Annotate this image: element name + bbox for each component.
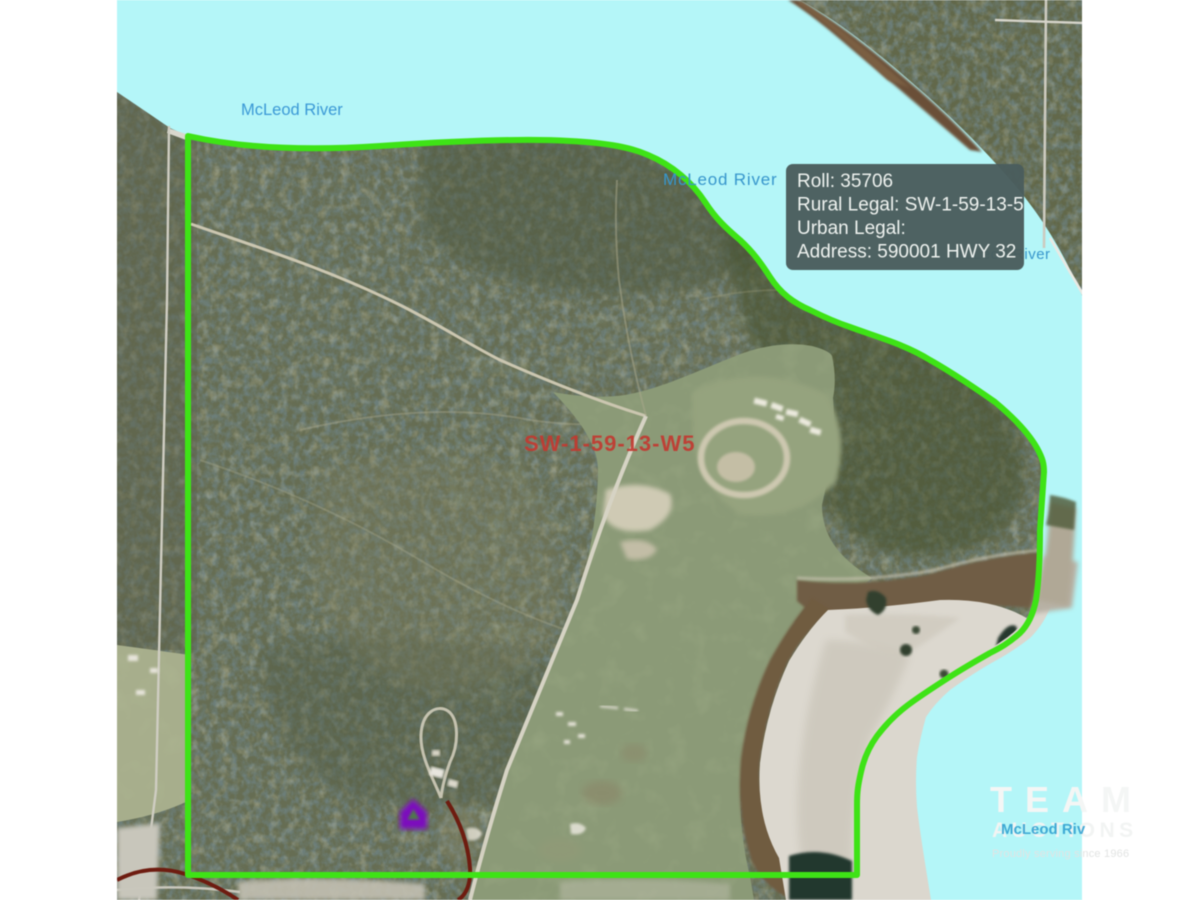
svg-text:Rural Legal: SW-1-59-13-5: Rural Legal: SW-1-59-13-5 [797,195,1024,216]
svg-text:McLeod River: McLeod River [241,101,343,119]
svg-text:Address: 590001 HWY 32: Address: 590001 HWY 32 [797,242,1016,263]
svg-text:McLeod River: McLeod River [663,170,777,189]
svg-text:SW-1-59-13-W5: SW-1-59-13-W5 [524,431,695,456]
svg-text:Roll: 35706: Roll: 35706 [797,171,893,192]
svg-text:TEAM: TEAM [990,779,1144,820]
svg-text:McLeod Riv: McLeod Riv [1001,821,1086,838]
svg-text:Proudly serving since 1966: Proudly serving since 1966 [992,848,1129,860]
svg-text:Urban Legal:: Urban Legal: [797,218,906,239]
